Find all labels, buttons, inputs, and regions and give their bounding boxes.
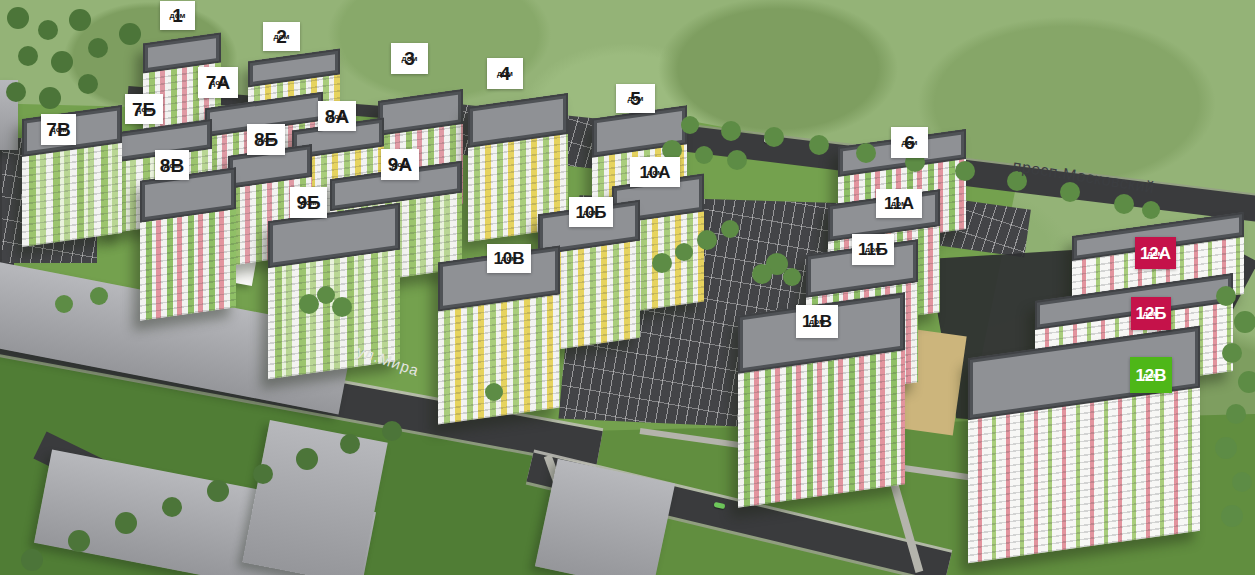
building-8v: [140, 167, 236, 320]
building-caption: дом: [274, 33, 290, 41]
building-label-12b[interactable]: 12Бдом: [1131, 297, 1171, 330]
building-caption: дом: [170, 12, 186, 20]
trees-dark: [0, 0, 8, 8]
building-caption: дом: [51, 126, 67, 134]
building-label-9a[interactable]: 9Адом: [381, 149, 419, 180]
building-label-11a[interactable]: 11Адом: [876, 189, 922, 218]
building-caption: дом: [583, 209, 599, 217]
building-caption: дом: [647, 169, 663, 177]
building-caption: дом: [809, 318, 825, 326]
building-caption: дом: [1143, 372, 1159, 380]
building-caption: дом: [1148, 250, 1164, 258]
building-caption: дом: [1143, 310, 1159, 318]
building-caption: дом: [258, 136, 274, 144]
building-facade: [22, 143, 122, 247]
existing-building: [0, 80, 18, 150]
building-label-7v[interactable]: 7Вдом: [41, 114, 76, 145]
building-label-10v[interactable]: 10Вдом: [487, 244, 531, 273]
building-label-3[interactable]: 3дом: [391, 43, 428, 74]
building-label-7b[interactable]: 7Бдом: [125, 94, 163, 124]
building-label-1[interactable]: 1дом: [160, 1, 195, 30]
building-label-8v[interactable]: 8Вдом: [155, 150, 189, 180]
building-facade: [738, 350, 905, 508]
building-label-5[interactable]: 5дом: [616, 84, 655, 113]
building-label-11v[interactable]: 11Вдом: [796, 305, 838, 338]
building-caption: дом: [164, 162, 180, 170]
building-label-8a[interactable]: 8Адом: [318, 101, 356, 131]
building-caption: дом: [497, 70, 513, 78]
building-caption: дом: [402, 55, 418, 63]
building-caption: дом: [392, 161, 408, 169]
building-label-7a[interactable]: 7Адом: [198, 67, 238, 98]
building-label-6[interactable]: 6дом: [891, 127, 928, 158]
building-label-4[interactable]: 4дом: [487, 58, 523, 89]
building-caption: дом: [501, 255, 517, 263]
masterplan: 1дом2дом3дом4дом5дом6дом7Адом7Бдом7Вдом8…: [0, 0, 1255, 575]
building-caption: дом: [301, 199, 317, 207]
building-label-9b[interactable]: 9Бдом: [290, 187, 327, 218]
building-facade: [438, 294, 560, 425]
building-facade: [140, 209, 236, 320]
building-caption: дом: [329, 113, 345, 121]
building-label-12a[interactable]: 12Адом: [1135, 237, 1176, 269]
building-caption: дом: [865, 246, 881, 254]
building-caption: дом: [210, 79, 226, 87]
building-caption: дом: [136, 106, 152, 114]
building-label-10b[interactable]: 10Бдом: [569, 197, 613, 227]
building-label-12v[interactable]: 12Вдом: [1130, 357, 1172, 393]
building-label-8b[interactable]: 8Бдом: [247, 124, 285, 155]
building-label-10a[interactable]: 10Адом: [630, 157, 680, 187]
building-label-2[interactable]: 2дом: [263, 22, 300, 51]
building-caption: дом: [628, 95, 644, 103]
building-label-11b[interactable]: 11Бдом: [852, 234, 894, 265]
building-caption: дом: [902, 139, 918, 147]
building-caption: дом: [891, 200, 907, 208]
